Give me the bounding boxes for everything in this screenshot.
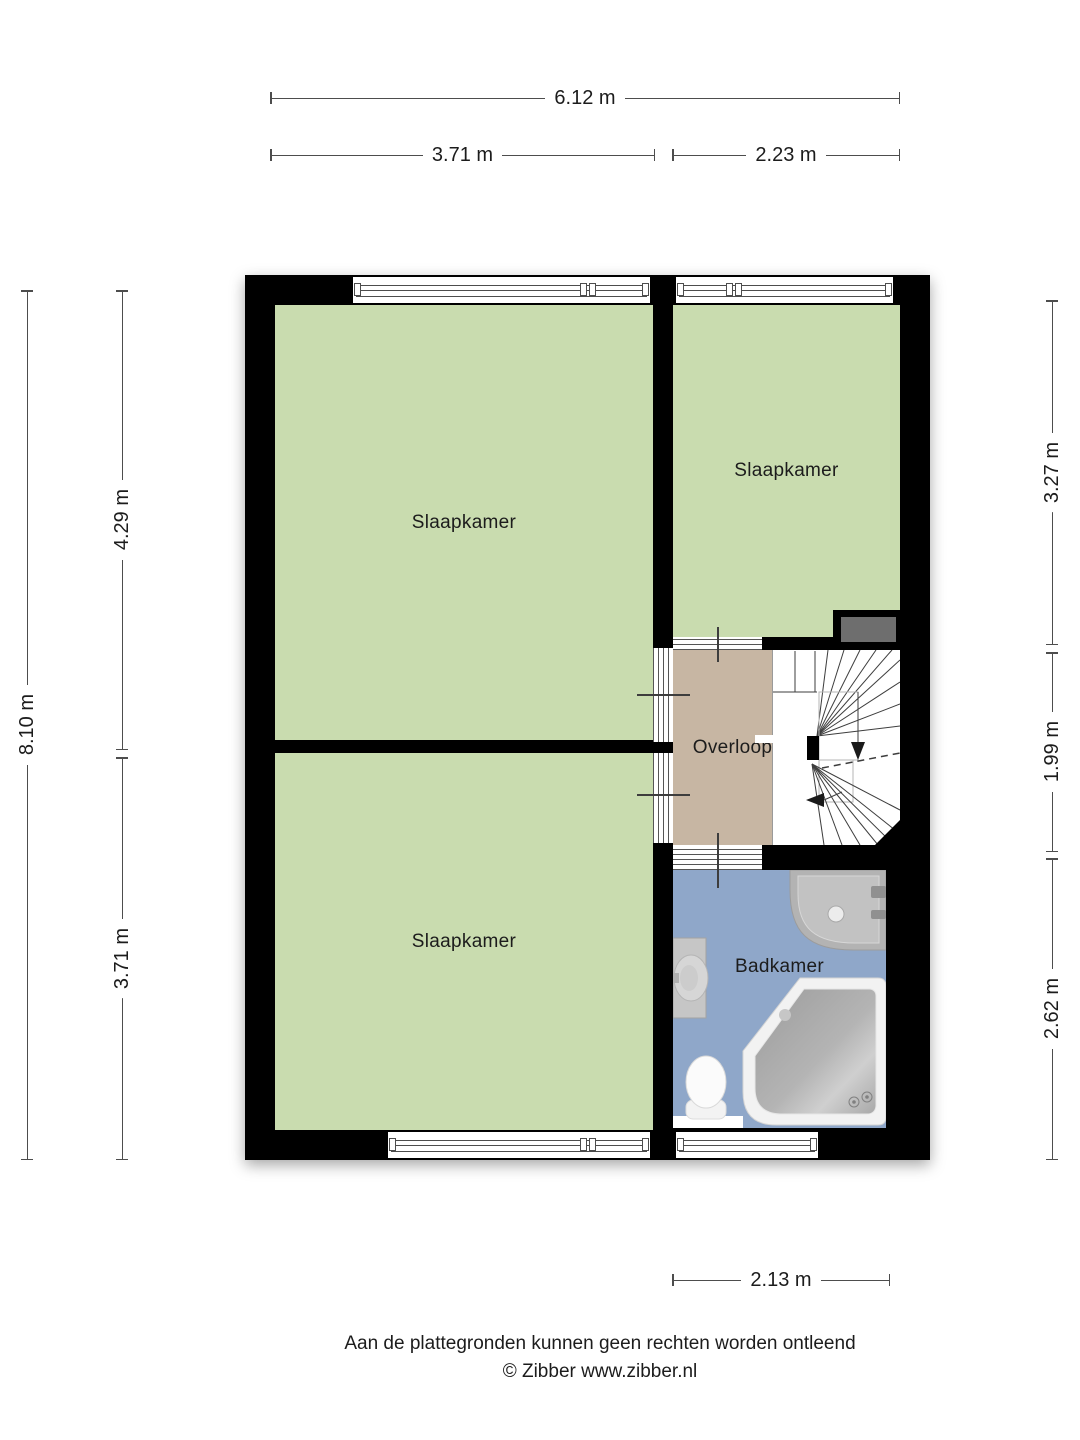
shower-faucet (871, 886, 886, 898)
dimension-top-total: 6.12 m (270, 86, 900, 110)
floor-plan: Slaapkamer Slaapkamer Slaapkamer Overloo… (245, 275, 930, 1160)
room-bedroom-bottom-left: Slaapkamer (275, 753, 653, 1130)
door-tick (717, 833, 719, 888)
dimension-left-total: 8.10 m (15, 290, 39, 1160)
door-tick (637, 694, 690, 696)
staircase-drawing (772, 650, 900, 845)
door-tick (637, 794, 690, 796)
door-bedroom-bottom-left (653, 753, 673, 843)
dimension-tick (899, 92, 901, 104)
shower (790, 870, 886, 950)
dimension-label: 8.10 m (16, 685, 39, 764)
stair-entry-strip (755, 735, 805, 743)
window (676, 277, 893, 303)
dimension-left-upper: 4.29 m (110, 290, 134, 750)
window (353, 277, 650, 303)
dimension-left-lower: 3.71 m (110, 757, 134, 1160)
dimension-right-middle: 1.99 m (1040, 652, 1064, 852)
room-label: Slaapkamer (412, 931, 516, 953)
room-bedroom-top-left: Slaapkamer (275, 305, 653, 740)
dimension-label: 4.29 m (111, 480, 134, 559)
dimension-label: 6.12 m (545, 87, 624, 110)
footer: Aan de plattegronden kunnen geen rechten… (140, 1330, 1060, 1386)
bathtub (743, 978, 886, 1125)
shower-drain (828, 906, 844, 922)
dimension-bottom: 2.13 m (672, 1268, 890, 1292)
window (676, 1132, 818, 1158)
room-landing: Overloop (673, 650, 772, 845)
toilet (686, 1056, 726, 1119)
stairs-left-arrow-icon (806, 793, 824, 807)
window (388, 1132, 650, 1158)
closet (841, 617, 896, 642)
dimension-label: 3.27 m (1041, 433, 1064, 512)
room-label: Slaapkamer (412, 512, 516, 534)
dimension-right-upper: 3.27 m (1040, 300, 1064, 645)
room-bedroom-right: Slaapkamer (673, 305, 900, 637)
door-tick (717, 627, 719, 662)
room-bathroom: Badkamer (673, 870, 886, 1128)
dimension-right-lower: 2.62 m (1040, 858, 1064, 1160)
dimension-label: 2.13 m (741, 1269, 820, 1292)
floor-plan-page: 6.12 m 3.71 m 2.23 m 2.13 m 8.10 m 4.29 … (0, 0, 1080, 1440)
dimension-top-right: 2.23 m (672, 143, 900, 167)
washbasin (673, 938, 708, 1018)
stairs-down-arrow-icon (851, 742, 865, 760)
bathroom-fixtures (673, 870, 886, 1128)
dimension-label: 2.23 m (746, 144, 825, 167)
dimension-label: 3.71 m (111, 919, 134, 998)
footer-disclaimer: Aan de plattegronden kunnen geen rechten… (140, 1330, 1060, 1358)
staircase (772, 650, 900, 845)
dimension-label: 2.62 m (1041, 969, 1064, 1048)
dimension-label: 3.71 m (423, 144, 502, 167)
room-label: Badkamer (673, 956, 886, 978)
dimension-top-left: 3.71 m (270, 143, 655, 167)
room-label: Slaapkamer (734, 460, 838, 482)
footer-copyright: © Zibber www.zibber.nl (140, 1358, 1060, 1386)
dimension-label: 1.99 m (1041, 712, 1064, 791)
